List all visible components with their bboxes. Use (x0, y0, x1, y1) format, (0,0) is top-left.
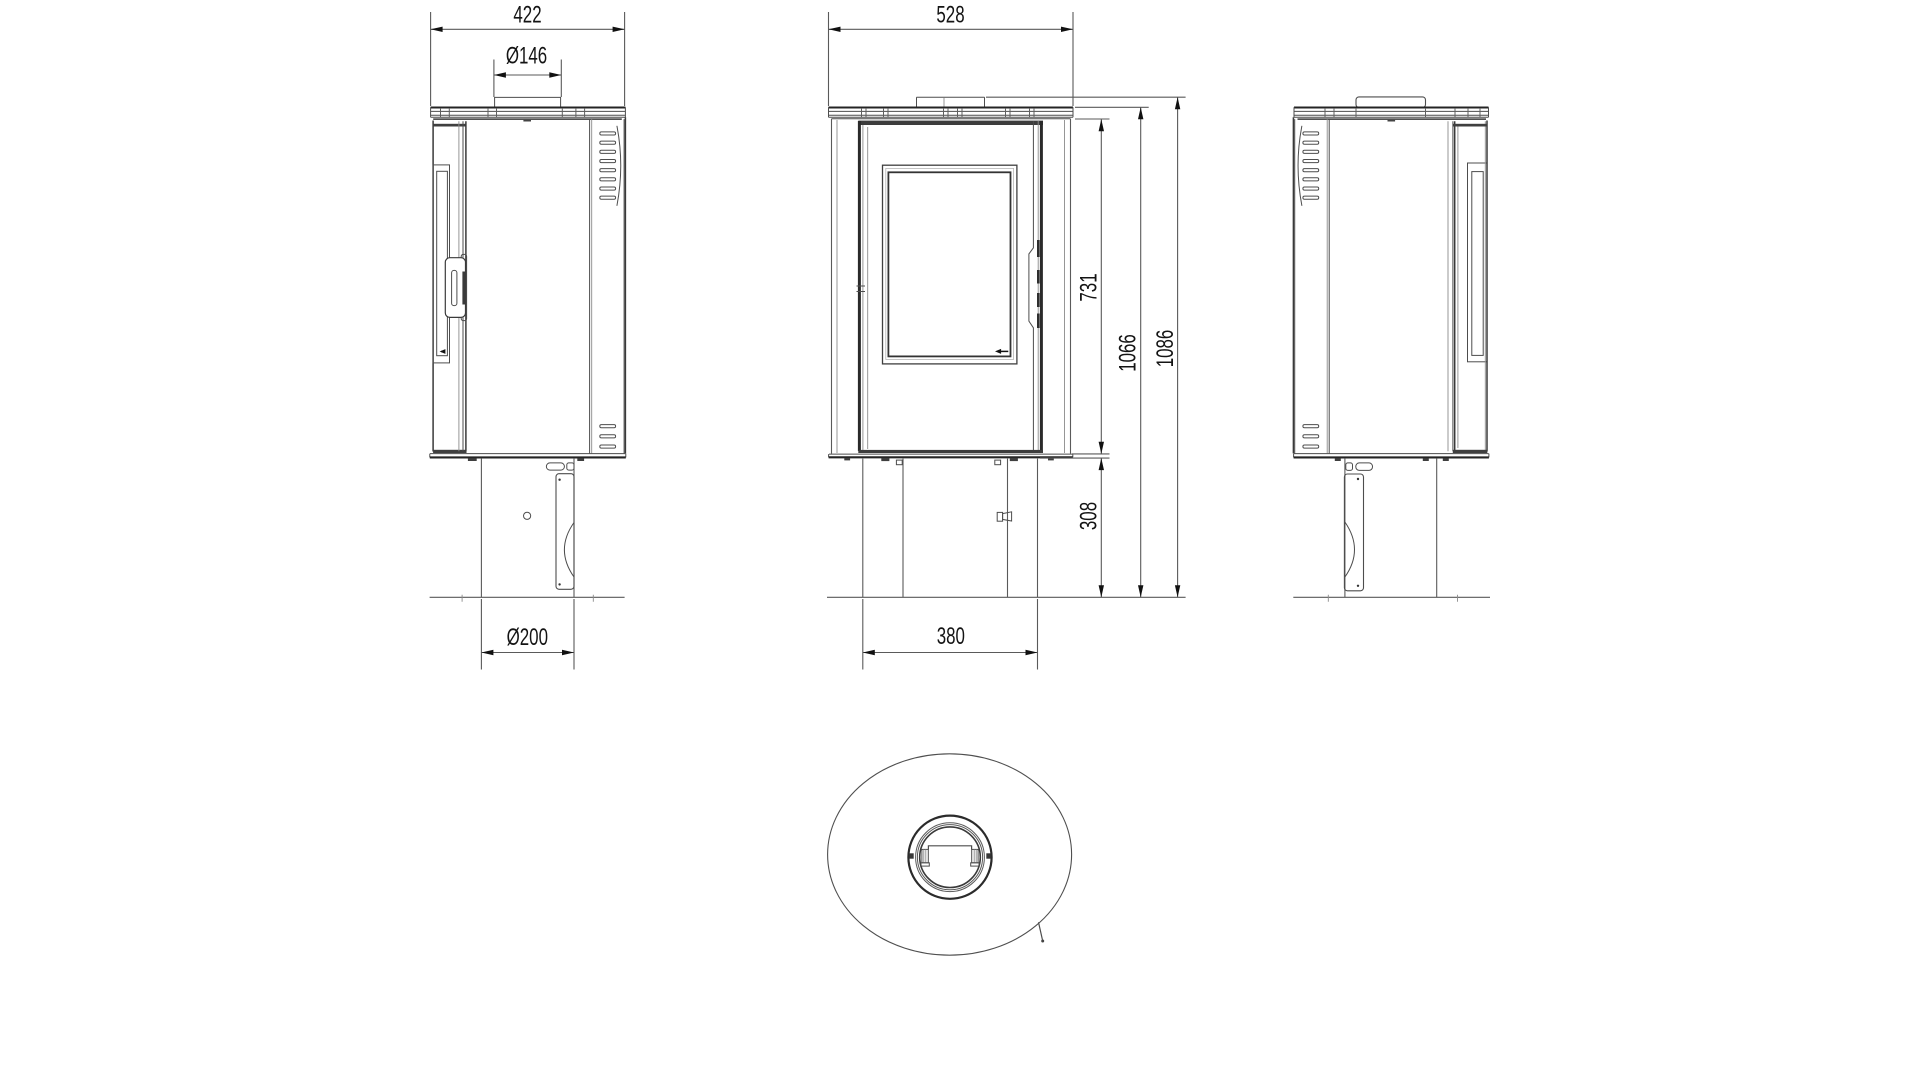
svg-text:Ø200: Ø200 (507, 624, 548, 651)
svg-text:422: 422 (513, 1, 541, 28)
svg-text:1066: 1066 (1115, 334, 1142, 372)
svg-text:1086: 1086 (1152, 330, 1179, 368)
svg-text:380: 380 (937, 623, 965, 650)
svg-text:528: 528 (936, 1, 964, 28)
svg-text:731: 731 (1076, 273, 1103, 301)
svg-text:Ø146: Ø146 (506, 43, 547, 70)
svg-text:308: 308 (1076, 502, 1103, 530)
